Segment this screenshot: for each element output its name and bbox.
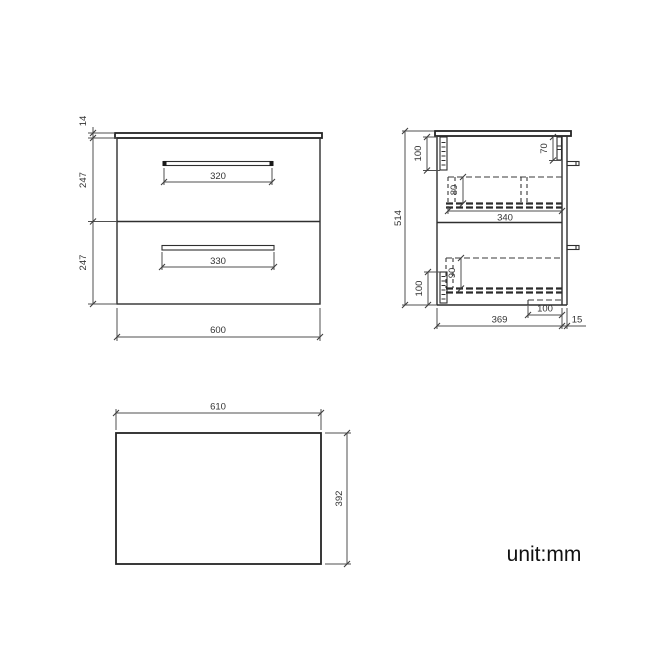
front-worktop [115, 133, 322, 138]
dim-front-top-clearance: 70 [539, 143, 550, 154]
dim-worktop-width: 610 [210, 402, 226, 413]
side-front-top-bracket [557, 137, 562, 160]
dim-bottom-drawer-height: 247 [78, 255, 89, 271]
side-bottom-drawer-hidden [446, 258, 562, 305]
dim-drawer-front-thickness: 15 [572, 315, 583, 326]
handle-end-cap [270, 161, 274, 166]
unit-note: unit:mm [507, 543, 582, 566]
dim-top-drawerbox-height: 80 [449, 185, 460, 196]
dim-worktop-thickness: 14 [78, 116, 89, 127]
front-width-dimension: 600 [114, 308, 323, 341]
plan-depth-dimension: 392 [325, 430, 351, 567]
dim-cabinet-depth: 369 [492, 315, 508, 326]
side-bottom-handle [567, 246, 579, 250]
side-view: 514 100 80 70 340 90 [393, 128, 586, 329]
front-cabinet [115, 133, 322, 304]
side-top-rail-dimension: 100 [413, 134, 440, 174]
front-handle-dimensions: 320 330 [159, 168, 277, 270]
technical-drawing-page: 14 247 247 320 330 600 [0, 0, 650, 650]
dim-drawer-internal-depth: 340 [497, 213, 513, 224]
dim-top-drawer-height: 247 [78, 172, 89, 188]
side-depth-dimension: 369 15 [434, 308, 586, 329]
dim-overall-height: 514 [393, 210, 404, 226]
dim-top-rail-height: 100 [413, 146, 424, 162]
side-top-mounting-rail [440, 137, 447, 170]
plan-width-dimension: 610 [113, 402, 324, 431]
dim-base-recess-depth: 100 [537, 304, 553, 315]
front-bottom-handle [162, 246, 274, 251]
side-top-handle [567, 162, 579, 166]
side-bottom-rail-dimension: 100 [414, 269, 440, 308]
side-bottom-drawer-runner [446, 289, 562, 293]
dim-worktop-depth: 392 [334, 491, 345, 507]
dim-top-handle-width: 320 [210, 171, 226, 182]
dim-overall-width: 600 [210, 325, 226, 336]
handle-bar [162, 246, 274, 251]
side-top-drawerbox-dimension: 80 [449, 174, 466, 207]
dim-bottom-drawerbox-height: 90 [447, 268, 458, 279]
side-worktop [435, 131, 571, 136]
dim-bottom-handle-width: 330 [210, 256, 226, 267]
dim-bottom-rail-height: 100 [414, 281, 425, 297]
side-bottom-drawerbox-dimension: 90 [447, 255, 464, 292]
side-top-drawer-runner [446, 204, 562, 208]
front-left-dimensions: 14 247 247 [78, 116, 117, 307]
drawing-canvas: 14 247 247 320 330 600 [0, 0, 650, 650]
side-front-clearance-dimension: 70 [539, 134, 562, 164]
plan-view: 610 392 [113, 402, 351, 568]
handle-end-cap [163, 161, 167, 166]
plan-worktop-outline [116, 433, 321, 564]
front-top-handle [163, 161, 274, 166]
handle-bar [164, 162, 272, 166]
front-view: 14 247 247 320 330 600 [78, 116, 323, 341]
